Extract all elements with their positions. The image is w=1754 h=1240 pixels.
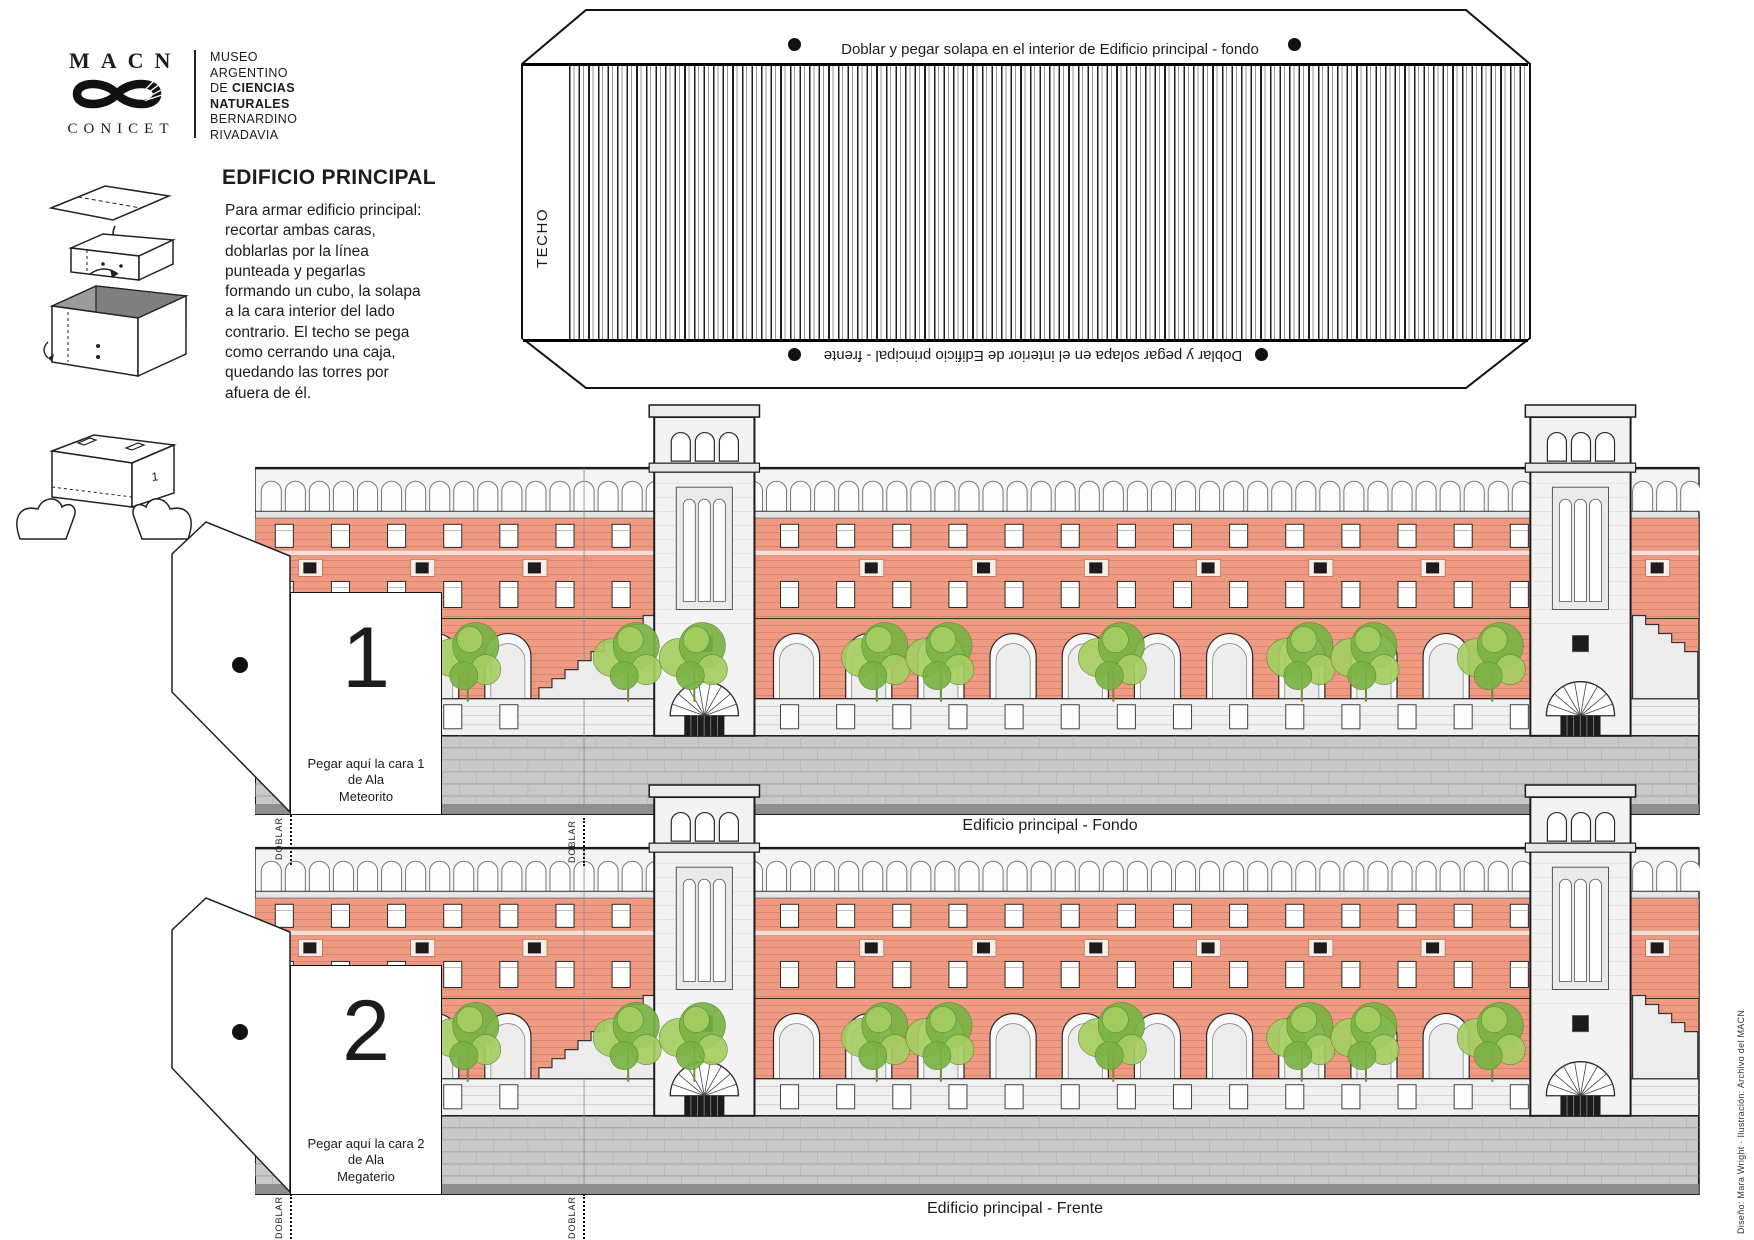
assembly-instructions: Para armar edificio principal: recortar …	[225, 201, 457, 404]
fold-dot	[232, 1024, 248, 1040]
techo-label: TECHO	[534, 208, 551, 268]
glue-flap-1	[160, 505, 300, 820]
facade-frente-illustration	[255, 783, 1700, 1195]
fold-mark: DOBLAR	[583, 818, 585, 866]
logo-divider	[194, 50, 196, 138]
glue-area-1-number: 1	[291, 615, 441, 701]
facade-fondo-caption: Edificio principal - Fondo	[800, 817, 1300, 835]
techo-stripe-band: TECHO	[523, 63, 1528, 342]
techo-roof-panel: TECHO Doblar y pegar solapa en el interi…	[520, 8, 1532, 390]
glue-area-1: 1 Pegar aquí la cara 1 de Ala Meteorito	[290, 592, 442, 815]
fold-dot	[232, 657, 248, 673]
glue-area-2-number: 2	[291, 988, 441, 1074]
facade-fondo-illustration	[255, 403, 1700, 815]
techo-stripes	[569, 66, 1527, 339]
techo-top-note: Doblar y pegar solapa en el interior de …	[680, 41, 1420, 58]
fold-mark: DOBLAR	[583, 1194, 585, 1239]
macn-acronym: MACN	[69, 48, 178, 74]
glue-area-1-note: Pegar aquí la cara 1 de Ala Meteorito	[291, 756, 441, 806]
credit-line: Diseño: Mara Wright · Ilustración: Archi…	[1736, 852, 1746, 1234]
facade-frente-caption: Edificio principal - Frente	[765, 1200, 1265, 1218]
infinity-logo-icon	[59, 74, 177, 114]
page-title: EDIFICIO PRINCIPAL	[222, 166, 436, 190]
conicet-label: CONICET	[64, 121, 178, 138]
papercraft-sheet: { "logo": { "acronym": "MACN", "conicet"…	[0, 0, 1754, 1240]
fold-dot	[1255, 348, 1268, 361]
fold-dot	[1288, 38, 1301, 51]
macn-logo-mark-column: MACN CONICET	[58, 48, 178, 138]
left-hand-icon	[17, 499, 75, 539]
assembly-diagram-fold-walls	[38, 262, 214, 400]
glue-area-2-note: Pegar aquí la cara 2 de Ala Megaterio	[291, 1136, 441, 1186]
fold-mark: DOBLAR	[290, 815, 292, 865]
glue-area-2: 2 Pegar aquí la cara 2 de Ala Megaterio	[290, 965, 442, 1195]
glue-flap-2	[160, 881, 300, 1199]
museum-name-lines: MUSEOARGENTINODE CIENCIASNATURALESBERNAR…	[210, 48, 297, 143]
techo-bottom-note: Doblar y pegar solapa en el interior de …	[663, 347, 1403, 364]
fold-mark: DOBLAR	[290, 1194, 292, 1239]
macn-logo: MACN CONICET MUSEOARGENTINODE CIENCIASNA…	[58, 48, 297, 143]
